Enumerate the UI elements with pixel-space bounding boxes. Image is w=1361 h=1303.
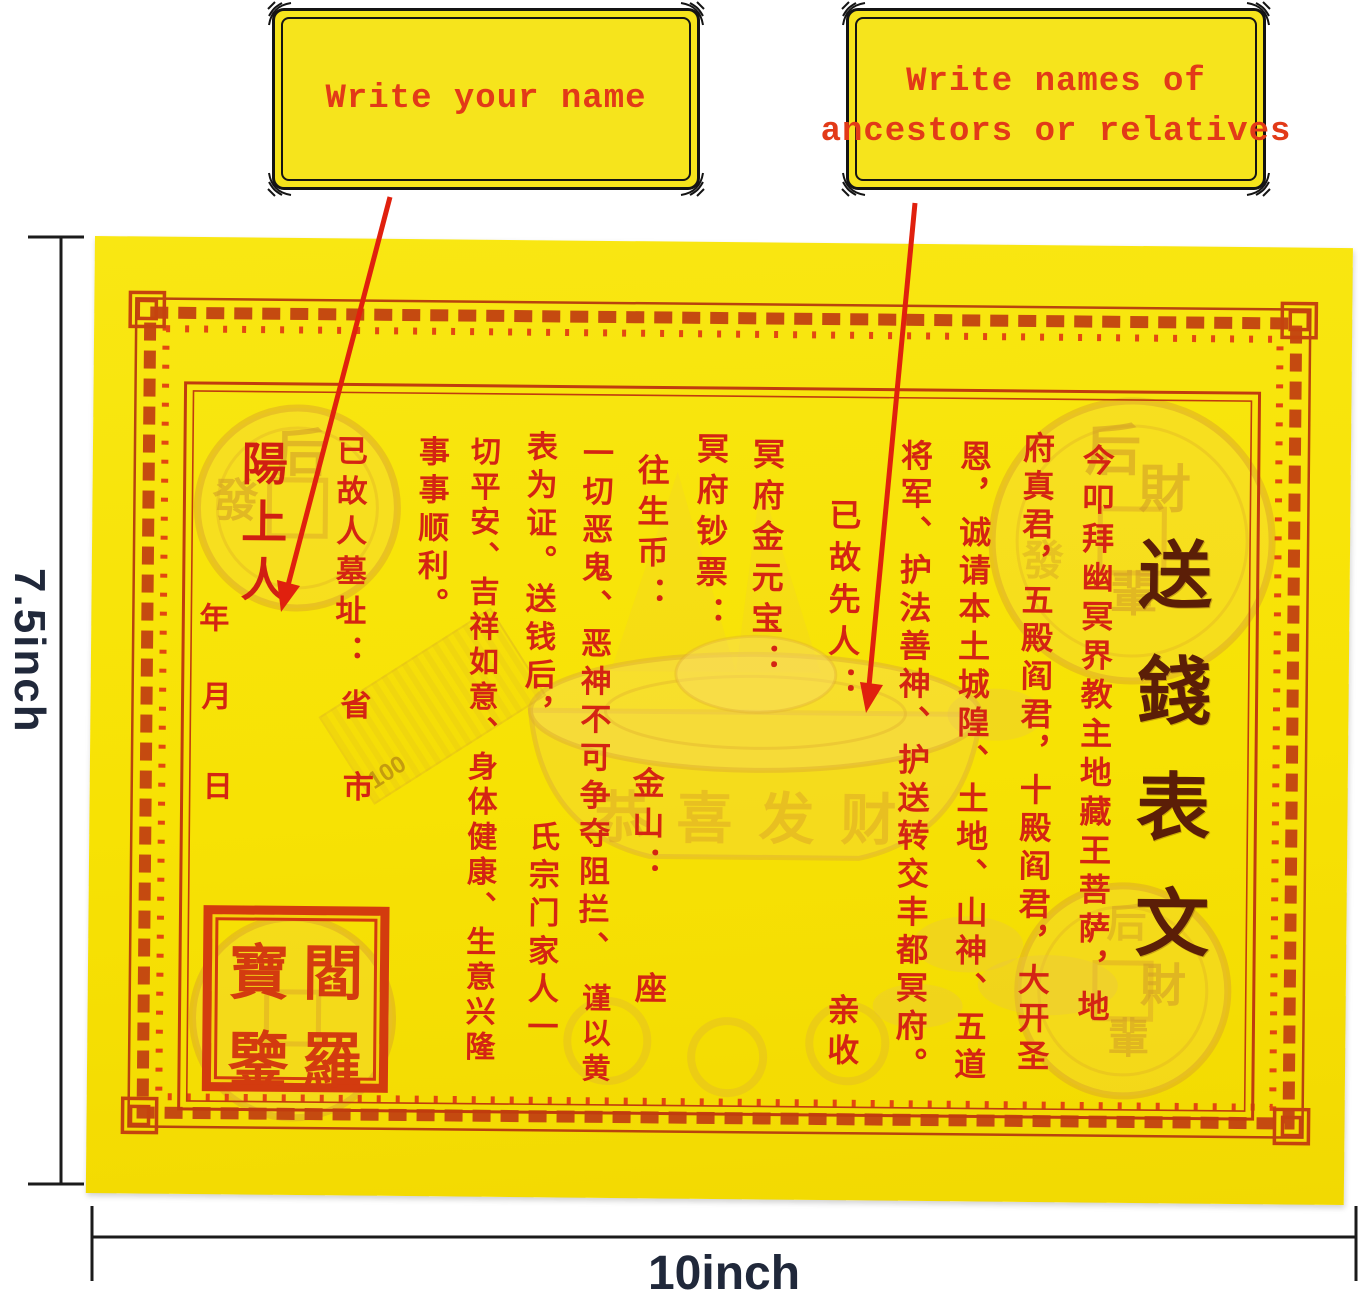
petition-label-living-person: 陽上人: [237, 439, 285, 613]
petition-column-2: 府真君，五殿阎君，十殿阎君，大开圣: [1015, 431, 1053, 1077]
corner-flourish-icon: [679, 171, 705, 197]
petition-column-rebirth-money: 往生币：: [634, 453, 668, 617]
petition-label-receive: 亲收: [825, 993, 858, 1073]
seal-character: 鑒: [221, 1011, 296, 1099]
corner-flourish-icon: [267, 171, 293, 197]
petition-column-11: 切平安、吉祥如意、身体健康、生意兴隆: [461, 436, 497, 1066]
callout-right-line2: ancestors or relatives: [821, 115, 1292, 149]
callout-left-text: Write your name: [325, 65, 646, 133]
petition-column-1: 今叩拜幽冥界教主地藏王菩萨，地: [1075, 443, 1113, 1028]
corner-flourish-icon: [841, 171, 867, 197]
seal-character: 羅: [295, 1012, 370, 1100]
corner-flourish-icon: [841, 1, 867, 27]
petition-column-3: 恩，诚请本土城隍、土地、山神、五道: [952, 439, 990, 1085]
corner-flourish-icon: [1245, 1, 1271, 27]
joss-paper: 后 發 后 財 輩 發 后 財 輩 恭喜发财 100 送錢表文 今叩拜幽冥界教主…: [86, 236, 1353, 1205]
petition-column-9: 一切恶鬼、恶神不可争夺阻拦、: [574, 437, 610, 969]
petition-label-month: 月: [197, 680, 227, 710]
height-dimension-label: 7.5inch: [4, 568, 54, 734]
petition-label-day: 日: [199, 770, 229, 800]
petition-column-banknotes: 冥府钞票：: [693, 432, 727, 637]
callout-right-line1: Write names of: [906, 49, 1206, 115]
callout-write-ancestor-names: Write names of ancestors or relatives: [846, 8, 1266, 190]
seal-character: 閻: [296, 925, 371, 1013]
petition-label-seat: 座: [633, 971, 665, 1003]
petition-label-city: 市: [339, 770, 370, 801]
corner-flourish-icon: [267, 1, 293, 27]
width-dimension-label: 10inch: [92, 1246, 1356, 1301]
corner-flourish-icon: [679, 1, 705, 27]
callout-write-your-name: Write your name: [272, 8, 700, 190]
corner-flourish-icon: [1245, 171, 1271, 197]
seal-character: 寶: [222, 924, 297, 1012]
petition-column-10: 表为证。送钱后，: [520, 430, 554, 734]
petition-column-gold-ingots: 冥府金元宝：: [749, 437, 783, 683]
petition-label-province: 省: [336, 688, 367, 719]
petition-column-10b: 氏宗门家人一: [523, 820, 556, 1048]
petition-label-year: 年: [195, 602, 225, 632]
petition-column-grave-address: 已故人墓址：: [331, 434, 364, 674]
petition-column-12: 事事顺利。: [413, 435, 446, 625]
product-annotation-figure: { "callouts": { "left": { "text": "Write…: [0, 0, 1361, 1303]
petition-title: 送錢表文: [1128, 536, 1206, 1001]
petition-label-gold-mountain: 金山：: [630, 766, 663, 886]
petition-column-9b: 谨以黄: [579, 983, 609, 1088]
petition-column-deceased: 已故先人：: [826, 498, 860, 708]
petition-column-4: 将军、护法善神、护送转交丰都冥府。: [893, 439, 931, 1085]
yama-seal: 寶 閻 鑒 羅: [202, 905, 390, 1093]
